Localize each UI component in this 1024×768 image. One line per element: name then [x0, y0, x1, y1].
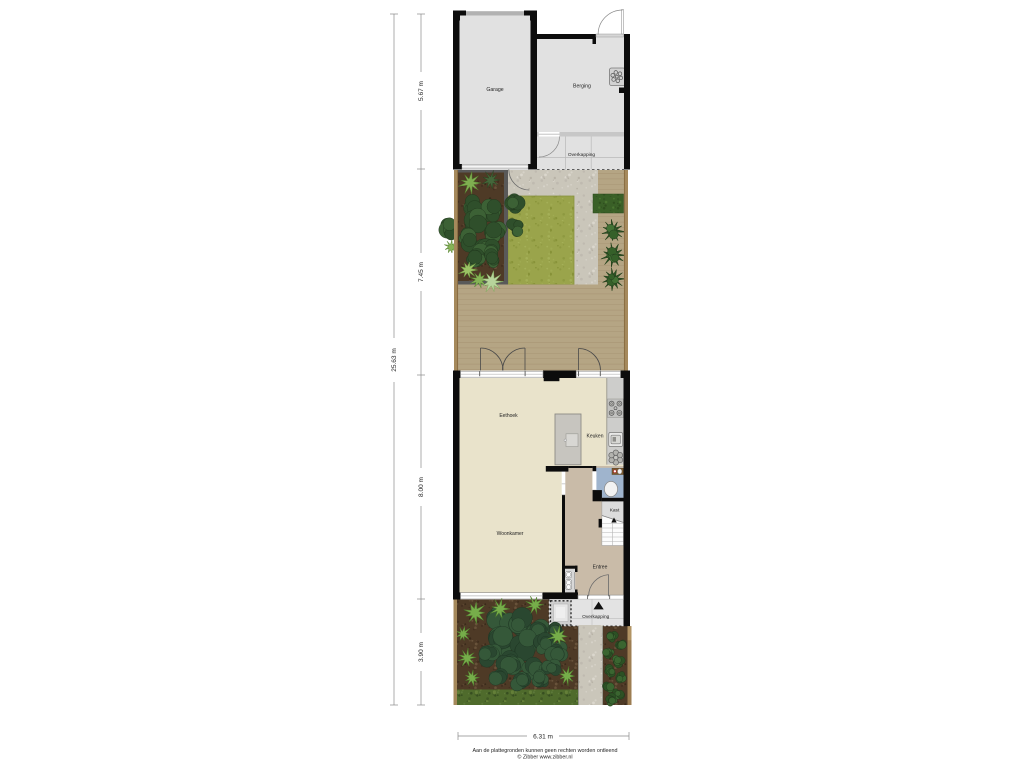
svg-text:Kast: Kast: [610, 507, 620, 513]
svg-text:Keuken: Keuken: [587, 434, 604, 440]
svg-text:8.00 m: 8.00 m: [418, 477, 425, 497]
svg-text:Overkapping: Overkapping: [582, 614, 610, 620]
svg-text:Entree: Entree: [593, 565, 608, 571]
svg-text:Aan de plattegronden kunnen ge: Aan de plattegronden kunnen geen rechten…: [472, 748, 617, 754]
svg-text:Berging: Berging: [573, 84, 591, 90]
svg-text:Garage: Garage: [486, 87, 503, 93]
svg-text:6.31 m: 6.31 m: [533, 734, 553, 741]
svg-text:Overkapping: Overkapping: [568, 152, 596, 158]
svg-text:7.45 m: 7.45 m: [418, 262, 425, 282]
svg-text:Eethoek: Eethoek: [499, 413, 518, 419]
svg-text:Woonkamer: Woonkamer: [497, 531, 524, 537]
svg-text:5.67 m: 5.67 m: [418, 81, 425, 101]
svg-text:© Zibber www.zibber.nl: © Zibber www.zibber.nl: [517, 754, 572, 761]
svg-text:3.90 m: 3.90 m: [418, 642, 425, 662]
svg-text:25.63 m: 25.63 m: [391, 348, 398, 372]
